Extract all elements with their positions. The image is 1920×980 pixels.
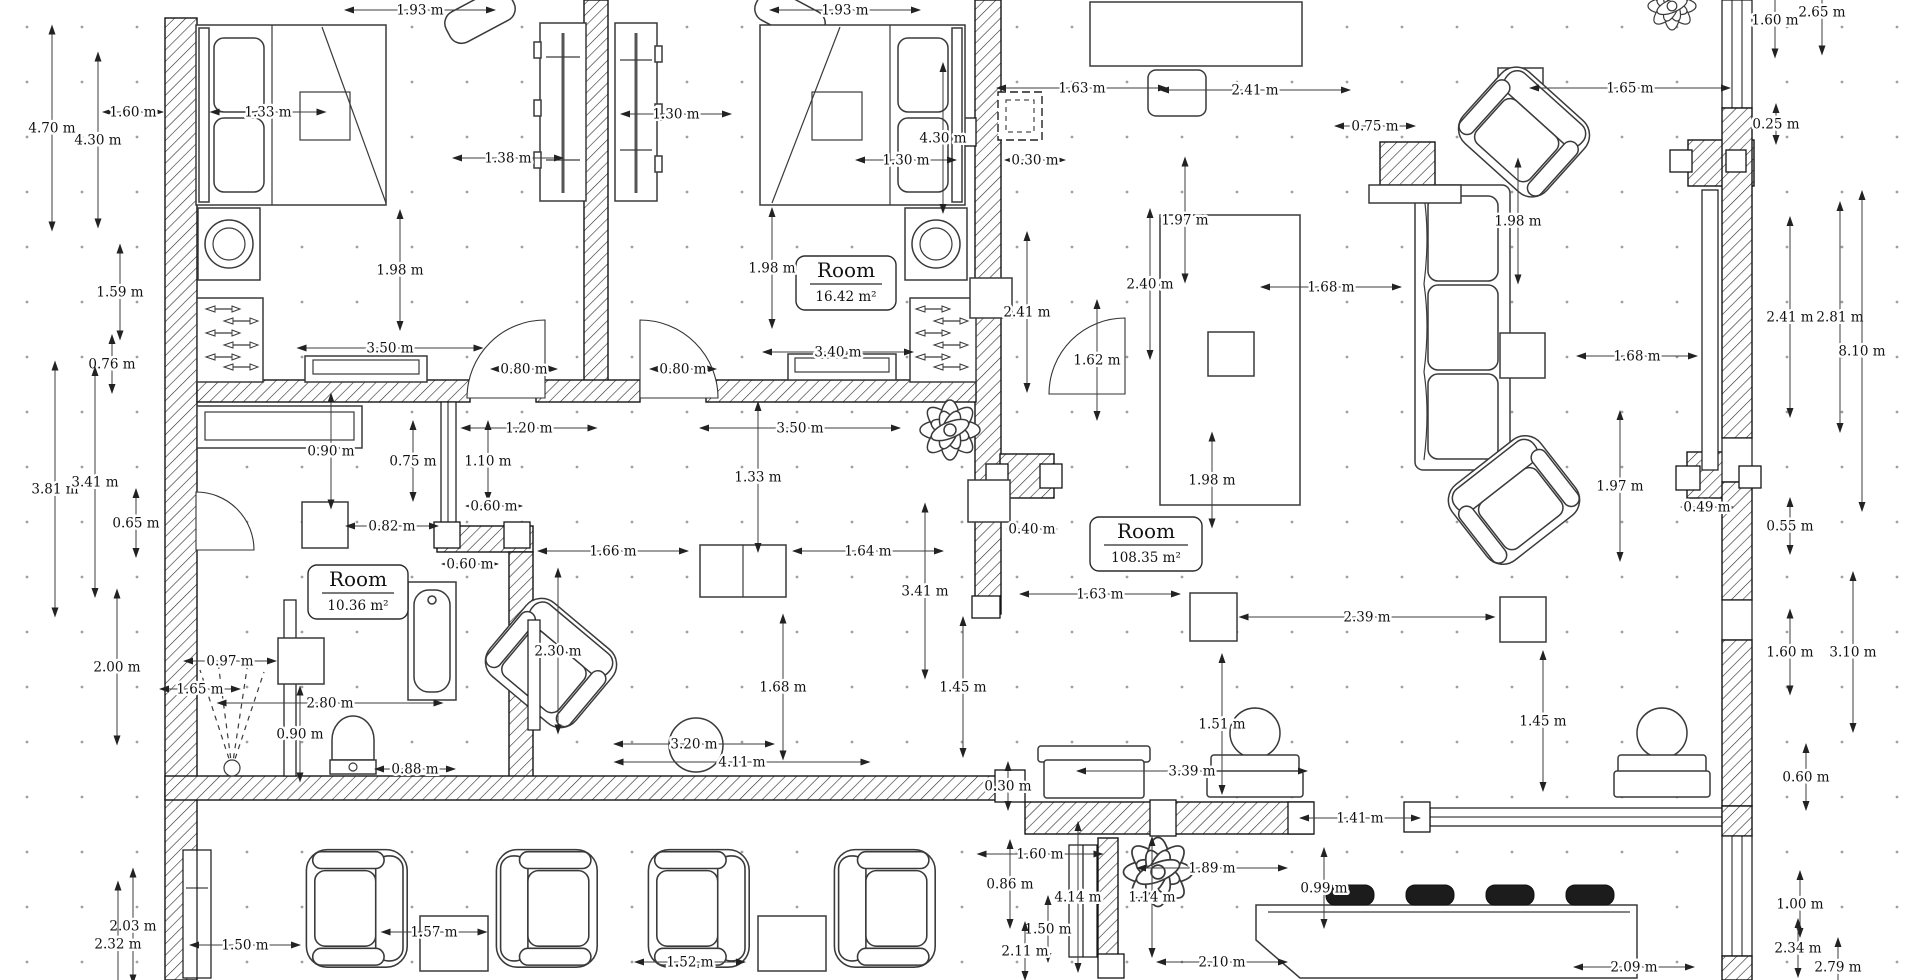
room-name: Room [1117, 519, 1175, 543]
desk-icon [534, 23, 586, 201]
wall-right-3 [1722, 640, 1752, 806]
radiator-icon [528, 620, 540, 730]
dimension-text: 1.98 m [748, 261, 795, 277]
dimension-text: 0.76 m [88, 357, 135, 373]
dimension-text: 1.89 m [1188, 861, 1235, 877]
dimension-text: 0.60 m [1782, 770, 1829, 786]
dimension-text: 2.32 m [94, 937, 141, 953]
dimension-annotation: 0.80 m [650, 362, 716, 378]
dimension-text: 1.97 m [1161, 213, 1208, 229]
dimension-text: 1.98 m [1188, 473, 1235, 489]
coffee-table-icon [700, 545, 786, 597]
column [1150, 800, 1176, 836]
dimension-text: 0.82 m [368, 519, 415, 535]
dimension-text: 1.00 m [1776, 897, 1823, 913]
dimension-text: 1.63 m [1058, 81, 1105, 97]
dimension-text: 0.30 m [1011, 153, 1058, 169]
room-label: Room 108.35 m² [1090, 517, 1202, 571]
floor-plan-drawing: Room 16.42 m² Room 108.35 m² Room 10.36 … [0, 0, 1920, 980]
wall-corridor-2 [536, 380, 640, 402]
dimension-text: 1.98 m [376, 263, 423, 279]
armchair-icon [834, 850, 935, 968]
radiator-icon [1702, 190, 1718, 470]
dimension-text: 0.90 m [276, 727, 323, 743]
side-table-icon [1500, 333, 1545, 378]
dimension-text: 0.60 m [446, 557, 493, 573]
dimension-text: 1.38 m [484, 151, 531, 167]
dimension-text: 2.41 m [1231, 83, 1278, 99]
column [972, 596, 1000, 618]
dimension-text: 1.59 m [96, 285, 143, 301]
dimension-text: 3.50 m [776, 421, 823, 437]
dimension-text: 0.25 m [1752, 117, 1799, 133]
sink-icon [278, 638, 324, 684]
dimension-text: 1.51 m [1198, 717, 1245, 733]
shower-screen-icon [284, 600, 296, 776]
column [1676, 466, 1700, 490]
wall-corridor-1 [197, 380, 470, 402]
dimension-annotation: 0.49 m [1681, 500, 1733, 516]
dimension-text: 2.40 m [1126, 277, 1173, 293]
dimension-text: 1.64 m [844, 544, 891, 560]
room-area: 16.42 m² [815, 289, 876, 305]
dimension-text: 1.60 m [1751, 13, 1798, 29]
dimension-text: 0.97 m [206, 654, 253, 670]
dimension-text: 2.65 m [1798, 5, 1845, 21]
dimension-annotation: 0.80 m [491, 362, 557, 378]
dimension-text: 2.39 m [1343, 610, 1390, 626]
dimension-text: 2.79 m [1814, 960, 1861, 976]
side-table-icon [1500, 597, 1546, 642]
wall-bottom-a [165, 776, 1010, 800]
dimension-text: 1.20 m [505, 421, 552, 437]
column [1098, 954, 1124, 978]
window-right-2 [1722, 600, 1752, 640]
dimension-text: 1.52 m [666, 955, 713, 971]
dimension-text: 1.93 m [396, 3, 443, 19]
dimension-text: 0.80 m [500, 362, 547, 378]
dimension-text: 0.99 m [1300, 881, 1347, 897]
dimension-text: 4.14 m [1054, 890, 1101, 906]
sideboard-icon [197, 406, 362, 448]
wall-bedroom-divider [584, 0, 608, 382]
dimension-text: 1.33 m [734, 470, 781, 486]
dimension-text: 0.55 m [1766, 519, 1813, 535]
dimension-text: 4.70 m [28, 121, 75, 137]
dimension-text: 0.88 m [391, 762, 438, 778]
dimension-text: 2.41 m [1766, 310, 1813, 326]
dimension-text: 1.30 m [882, 153, 929, 169]
dimension-annotation: 0.60 m [466, 499, 522, 515]
dimension-text: 1.98 m [1494, 214, 1541, 230]
dimension-text: 2.11 m [1001, 944, 1048, 960]
side-table-icon [968, 480, 1010, 522]
dimension-text: 0.86 m [986, 877, 1033, 893]
dresser-icon [305, 356, 427, 382]
room-label: Room 16.42 m² [796, 256, 896, 310]
dimension-annotation: 0.30 m [1005, 153, 1065, 169]
dimension-text: 0.40 m [1008, 522, 1055, 538]
dimension-text: 1.45 m [1519, 714, 1566, 730]
column [504, 522, 530, 548]
dimension-text: 1.66 m [589, 544, 636, 560]
dimension-text: 8.10 m [1838, 344, 1885, 360]
side-table-icon [1190, 593, 1237, 641]
room-name: Room [817, 258, 875, 282]
dimension-text: 0.49 m [1683, 500, 1730, 516]
column [1726, 150, 1746, 172]
dimension-text: 3.41 m [71, 475, 118, 491]
dimension-text: 1.60 m [1766, 645, 1813, 661]
hall-table-icon [302, 502, 348, 548]
dimension-text: 1.14 m [1128, 890, 1175, 906]
dimension-annotation: 1.60 m [103, 105, 163, 121]
dimension-text: 0.65 m [112, 516, 159, 532]
dimension-text: 3.41 m [901, 584, 948, 600]
floor-plan-canvas[interactable]: Room 16.42 m² Room 108.35 m² Room 10.36 … [0, 0, 1920, 980]
dimension-text: 1.60 m [109, 105, 156, 121]
dimension-text: 0.30 m [984, 779, 1031, 795]
dimension-text: 1.60 m [1016, 847, 1063, 863]
armchair-icon [496, 850, 597, 968]
dimension-text: 3.40 m [814, 345, 861, 361]
column [1670, 150, 1692, 172]
dimension-text: 1.50 m [221, 938, 268, 954]
dimension-text: 4.30 m [919, 131, 966, 147]
dimension-text: 2.30 m [534, 644, 581, 660]
dimension-text: 0.75 m [389, 454, 436, 470]
window-right-top [1722, 0, 1752, 108]
bathtub-icon [408, 582, 456, 700]
wardrobe-icon [910, 298, 976, 382]
dimension-text: 2.80 m [306, 696, 353, 712]
column [1040, 464, 1062, 488]
dimension-text: 0.90 m [307, 444, 354, 460]
dimension-text: 1.10 m [464, 454, 511, 470]
column [1404, 802, 1430, 832]
dimension-text: 3.39 m [1168, 764, 1215, 780]
dimension-text: 1.62 m [1073, 353, 1120, 369]
dimension-text: 1.68 m [759, 680, 806, 696]
dimension-text: 1.93 m [821, 3, 868, 19]
dimension-text: 3.20 m [670, 737, 717, 753]
dimension-text: 2.03 m [109, 919, 156, 935]
wall-corridor-3 [706, 380, 976, 402]
dimension-text: 1.57 m [410, 925, 457, 941]
dimension-text: 2.81 m [1816, 310, 1863, 326]
dimension-text: 1.68 m [1307, 280, 1354, 296]
wardrobe-icon [197, 298, 263, 382]
room-label: Room 10.36 m² [308, 565, 408, 619]
dimension-text: 2.41 m [1003, 305, 1050, 321]
window-right-3 [1722, 836, 1752, 956]
dimension-text: 4.30 m [74, 133, 121, 149]
dimension-text: 1.50 m [1024, 922, 1071, 938]
dimension-text: 0.80 m [659, 362, 706, 378]
dimension-text: 3.50 m [366, 341, 413, 357]
room-area: 108.35 m² [1111, 550, 1181, 566]
room-area: 10.36 m² [327, 598, 388, 614]
dimension-text: 0.60 m [470, 499, 517, 515]
dimension-text: 1.63 m [1076, 587, 1123, 603]
nightstand-icon [905, 208, 967, 280]
shaft-icon [998, 92, 1042, 140]
armchair-icon [648, 850, 749, 968]
dimension-text: 1.65 m [1606, 81, 1653, 97]
dimension-text: 1.68 m [1613, 349, 1660, 365]
side-table-icon [758, 916, 826, 971]
dimension-text: 0.75 m [1351, 119, 1398, 135]
toilet-icon [330, 716, 376, 774]
wall-right-5 [1722, 956, 1752, 980]
dimension-text: 2.00 m [93, 660, 140, 676]
terrace-door-icon [183, 850, 211, 978]
column [1739, 466, 1761, 488]
dimension-text: 2.10 m [1198, 955, 1245, 971]
room-name: Room [329, 567, 387, 591]
wall-left-outer [165, 18, 197, 980]
plant-icon [920, 400, 980, 460]
bed-icon [760, 25, 965, 205]
dimension-text: 1.97 m [1596, 479, 1643, 495]
bench-icon [1038, 746, 1150, 798]
wall-right-4 [1722, 806, 1752, 836]
dimension-text: 1.65 m [176, 682, 223, 698]
dimension-text: 3.10 m [1829, 645, 1876, 661]
dimension-text: 1.41 m [1336, 811, 1383, 827]
dimension-text: 2.34 m [1774, 941, 1821, 957]
nightstand-icon [198, 208, 260, 280]
dimension-text: 4.11 m [718, 755, 765, 771]
armchair-icon [306, 850, 407, 968]
dimension-text: 1.30 m [652, 107, 699, 123]
dimension-annotation: 0.60 m [442, 557, 498, 573]
dimension-annotation: 0.40 m [1007, 522, 1057, 538]
long-table-icon [1160, 215, 1300, 505]
dimension-text: 2.09 m [1610, 960, 1657, 976]
dimension-text: 1.33 m [244, 105, 291, 121]
dimension-text: 1.45 m [939, 680, 986, 696]
